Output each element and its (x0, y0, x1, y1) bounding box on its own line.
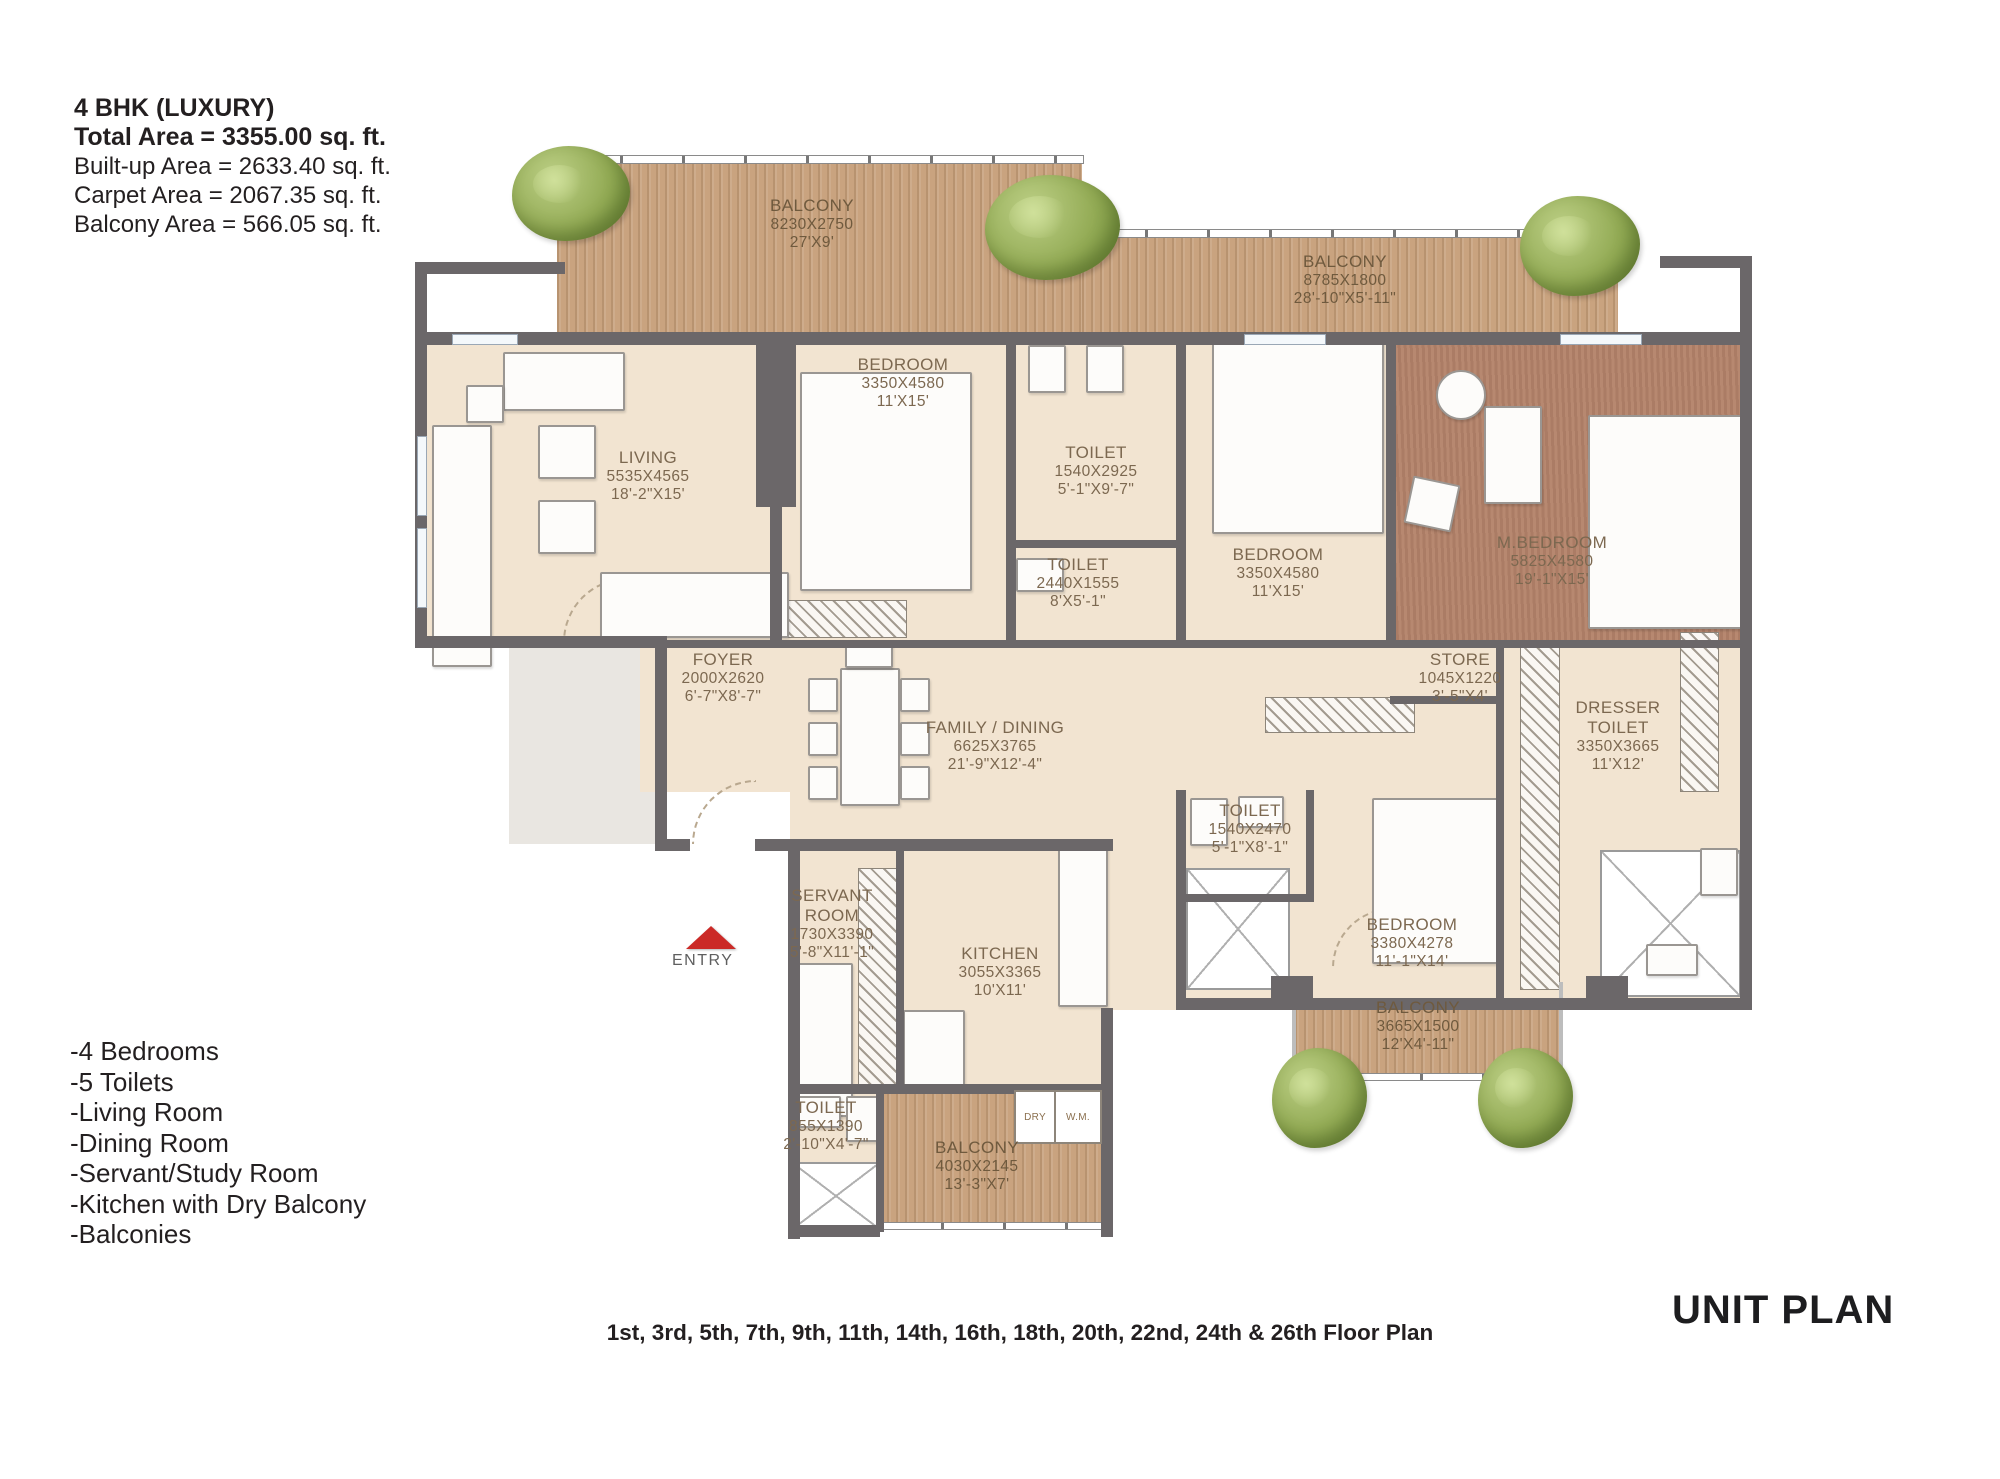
wall (415, 262, 427, 345)
built-up-area: Built-up Area = 2633.40 sq. ft. (74, 152, 391, 181)
feature-item: -Living Room (70, 1097, 366, 1128)
floors-note: 1st, 3rd, 5th, 7th, 9th, 11th, 14th, 16t… (500, 1320, 1540, 1346)
wall (755, 839, 1113, 851)
wall (1306, 790, 1314, 902)
room-label-toilet-2: TOILET 2440X1555 8'X5'-1" (1037, 555, 1120, 612)
wall (1176, 998, 1752, 1010)
total-area: Total Area = 3355.00 sq. ft. (74, 123, 391, 152)
wall (415, 332, 1752, 345)
room-label-balcony-top-right: BALCONY 8785X1800 28'-10"X5'-11" (1294, 252, 1396, 309)
room-label-balcony-bottom: BALCONY 4030X2145 13'-3"X7' (935, 1138, 1019, 1195)
room-label-balcony-bottom-right: BALCONY 3665X1500 12'X4'-11" (1376, 998, 1460, 1055)
shaft-void (792, 1162, 880, 1230)
kitchen-counter (903, 1010, 965, 1090)
wall (655, 636, 667, 851)
wall (1006, 540, 1186, 548)
entry-label: ENTRY (672, 952, 733, 970)
dining-chair (808, 722, 838, 756)
toilet-fixture (1646, 944, 1698, 976)
window (1560, 334, 1642, 345)
wall (896, 845, 904, 1085)
wardrobe-hatch (1680, 632, 1719, 792)
room-label-dresser-toilet: DRESSER TOILET 3350X3665 11'X12' (1576, 698, 1661, 775)
wall (1386, 337, 1396, 644)
balcony-area: Balcony Area = 566.05 sq. ft. (74, 210, 391, 239)
sofa (600, 572, 789, 638)
shaft-void (1186, 868, 1290, 990)
feature-item: -5 Toilets (70, 1067, 366, 1098)
wall (1660, 256, 1752, 268)
bed (1588, 415, 1744, 629)
room-label-toilet-1: TOILET 1540X2925 5'-1"X9'-7" (1055, 443, 1138, 500)
unit-plan-title: UNIT PLAN (1672, 1288, 1894, 1333)
wall (1006, 337, 1016, 644)
dry-label: DRY (1024, 1112, 1046, 1123)
toilet-fixture (1028, 345, 1066, 393)
wall (1101, 1008, 1113, 1237)
washing-machine-box: W.M. (1054, 1090, 1102, 1144)
wall (1186, 640, 1386, 648)
room-label-foyer: FOYER 2000X2620 6'-7"X8'-7" (682, 650, 765, 707)
room-label-bedroom-3: BEDROOM 3380X4278 11'-1"X14' (1367, 915, 1458, 972)
wall (1006, 640, 1186, 648)
room-label-toilet-4: TOILET 855X1390 2'-10"X4'-7" (783, 1098, 869, 1155)
toilet-fixture (1700, 848, 1738, 896)
wall (876, 1090, 884, 1232)
dining-table (840, 668, 900, 806)
tree (1272, 1048, 1367, 1148)
wall (415, 636, 665, 648)
room-label-family-dining: FAMILY / DINING 6625X3765 21'-9"X12'-4" (926, 718, 1065, 775)
window (1244, 334, 1326, 345)
entry-arrow-icon (686, 926, 736, 949)
room-label-master-bedroom: M.BEDROOM 5825X4580 19'-1"X15' (1497, 533, 1607, 590)
room-label-kitchen: KITCHEN 3055X3365 10'X11' (959, 944, 1042, 1001)
round-table (1436, 370, 1486, 420)
room-label-bedroom-2: BEDROOM 3350X4580 11'X15' (1233, 545, 1324, 602)
railing (557, 155, 1084, 164)
window (452, 334, 518, 345)
dining-chair (808, 766, 838, 800)
area-summary: 4 BHK (LUXURY) Total Area = 3355.00 sq. … (74, 94, 391, 239)
feature-item: -Dining Room (70, 1128, 366, 1159)
wall (415, 262, 565, 274)
tree (1478, 1048, 1573, 1148)
feature-list: -4 Bedrooms -5 Toilets -Living Room -Din… (70, 1036, 366, 1250)
wall (756, 337, 796, 507)
wm-label: W.M. (1066, 1112, 1090, 1123)
wall (1271, 976, 1313, 1002)
sofa (503, 352, 625, 411)
toilet-fixture (1086, 345, 1124, 393)
ottoman (1404, 476, 1461, 533)
wall (660, 640, 1010, 648)
armchair (538, 500, 596, 554)
sofa (432, 425, 492, 667)
wall (655, 839, 690, 851)
kitchen-counter (1058, 845, 1108, 1007)
wardrobe-hatch (1520, 640, 1560, 990)
wall (1740, 332, 1752, 1010)
room-label-living: LIVING 5535X4565 18'-2"X15' (607, 448, 690, 505)
dining-chair (900, 678, 930, 712)
room-label-servant-room: SERVANT ROOM 1730X3390 5'-8"X11'-1" (790, 886, 874, 963)
wall (1586, 976, 1628, 1002)
dry-area-box: DRY (1014, 1090, 1056, 1144)
wall (1180, 894, 1314, 902)
unit-type-title: 4 BHK (LUXURY) (74, 94, 391, 123)
armchair (538, 425, 596, 479)
exterior-lobby (509, 648, 655, 844)
feature-item: -Balconies (70, 1219, 366, 1250)
feature-item: -Kitchen with Dry Balcony (70, 1189, 366, 1220)
feature-item: -4 Bedrooms (70, 1036, 366, 1067)
side-table (466, 385, 504, 423)
feature-item: -Servant/Study Room (70, 1158, 366, 1189)
room-label-toilet-3: TOILET 1540X2470 5'-1"X8'-1" (1209, 801, 1292, 858)
wall (1386, 640, 1747, 648)
dining-chair (808, 678, 838, 712)
wall (770, 500, 782, 644)
railing (878, 1222, 1108, 1230)
tree (1520, 196, 1640, 296)
room-label-balcony-top-left: BALCONY 8230X2750 27'X9' (770, 196, 854, 253)
bed (1212, 340, 1384, 534)
chaise (1484, 406, 1542, 504)
wall (1176, 337, 1186, 644)
carpet-area: Carpet Area = 2067.35 sq. ft. (74, 181, 391, 210)
wall (1740, 256, 1752, 344)
window (417, 436, 427, 516)
room-label-bedroom-1: BEDROOM 3350X4580 11'X15' (858, 355, 949, 412)
room-label-store: STORE 1045X1220 3'-5"X4' (1419, 650, 1502, 707)
wall (788, 1225, 880, 1237)
floor-plan-page: 4 BHK (LUXURY) Total Area = 3355.00 sq. … (0, 0, 2000, 1479)
window (417, 528, 427, 608)
